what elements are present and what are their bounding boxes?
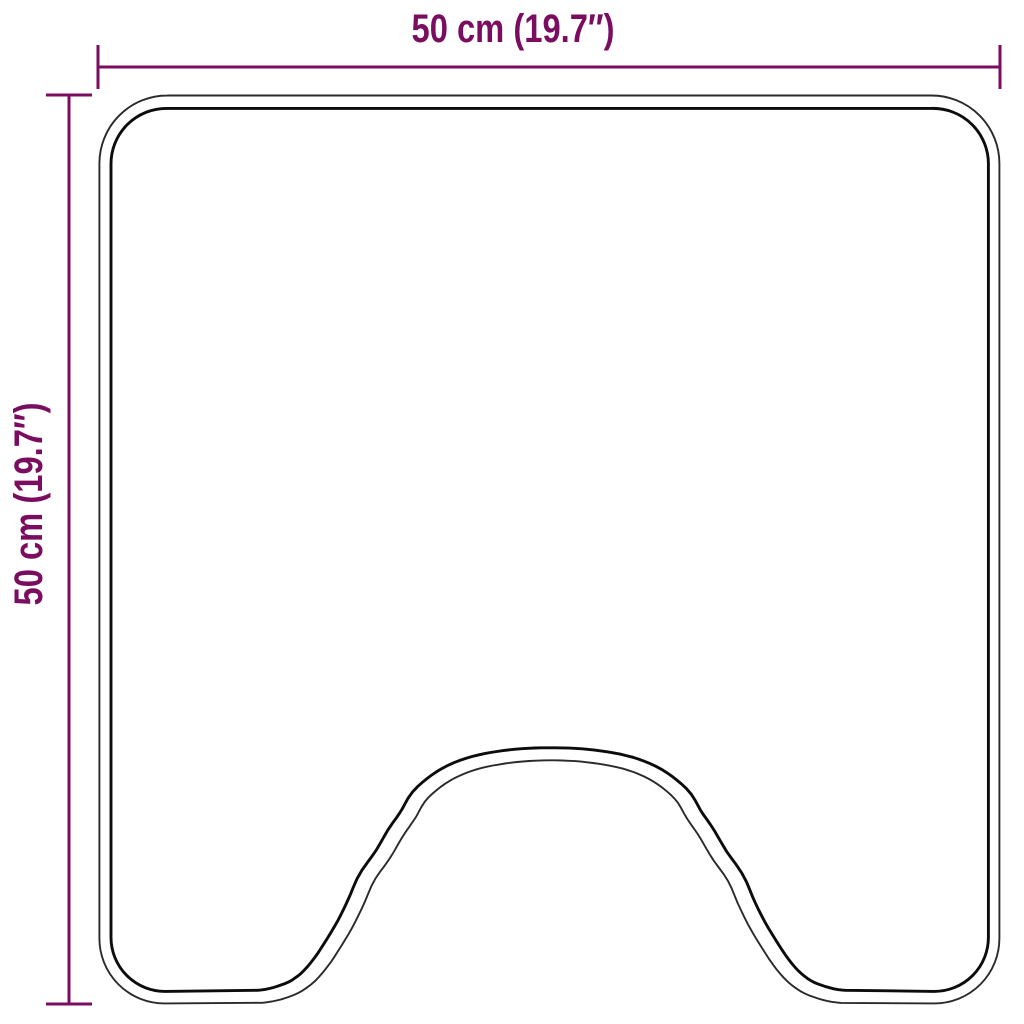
svg-text:50 cm (19.7″): 50 cm (19.7″)	[7, 403, 51, 606]
svg-text:50 cm (19.7″): 50 cm (19.7″)	[412, 7, 615, 51]
